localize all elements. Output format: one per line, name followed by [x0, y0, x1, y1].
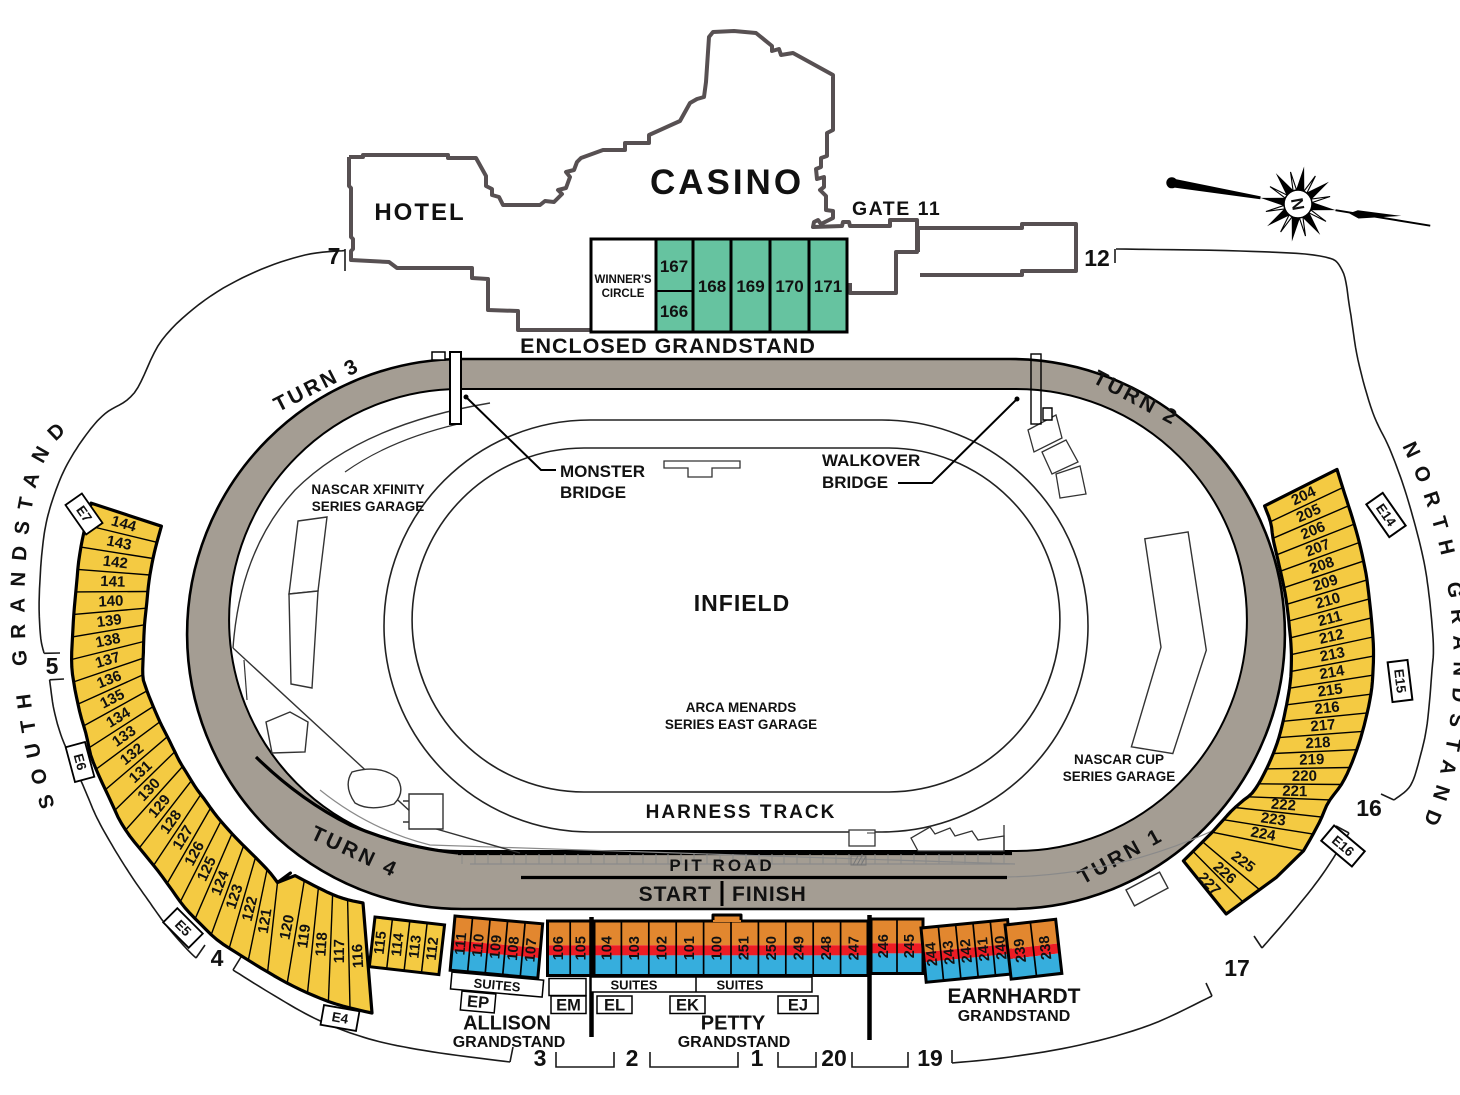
svg-text:216: 216: [1314, 698, 1341, 718]
svg-text:2: 2: [626, 1045, 639, 1071]
svg-text:MONSTER: MONSTER: [560, 462, 645, 481]
svg-text:140: 140: [98, 592, 124, 610]
svg-text:139: 139: [96, 611, 123, 631]
svg-text:246: 246: [876, 934, 892, 958]
svg-text:CIRCLE: CIRCLE: [602, 288, 645, 300]
svg-text:110: 110: [470, 933, 488, 958]
svg-text:PIT ROAD: PIT ROAD: [669, 856, 774, 875]
svg-text:HARNESS TRACK: HARNESS TRACK: [646, 802, 837, 823]
svg-text:SERIES GARAGE: SERIES GARAGE: [312, 499, 425, 514]
svg-text:BRIDGE: BRIDGE: [560, 483, 626, 502]
svg-text:GRANDSTAND: GRANDSTAND: [453, 1034, 566, 1051]
svg-text:119: 119: [294, 923, 314, 949]
svg-text:ARCA MENARDS: ARCA MENARDS: [686, 700, 797, 715]
svg-text:GRANDSTAND: GRANDSTAND: [678, 1034, 791, 1051]
svg-text:SERIES EAST GARAGE: SERIES EAST GARAGE: [665, 717, 817, 732]
svg-text:167: 167: [660, 257, 688, 276]
svg-text:17: 17: [1224, 955, 1250, 981]
svg-text:ENCLOSED GRANDSTAND: ENCLOSED GRANDSTAND: [520, 334, 816, 358]
svg-text:GATE 11: GATE 11: [852, 198, 941, 220]
svg-text:EM: EM: [556, 997, 581, 1015]
svg-text:249: 249: [792, 936, 808, 960]
svg-text:16: 16: [1356, 795, 1382, 821]
svg-text:117: 117: [331, 939, 348, 963]
svg-text:SERIES GARAGE: SERIES GARAGE: [1063, 769, 1176, 784]
svg-text:7: 7: [328, 243, 341, 269]
svg-text:241: 241: [975, 936, 993, 962]
svg-text:INFIELD: INFIELD: [694, 590, 790, 616]
svg-text:107: 107: [522, 937, 540, 963]
svg-text:109: 109: [487, 934, 505, 960]
svg-text:BRIDGE: BRIDGE: [822, 473, 888, 492]
svg-text:EP: EP: [466, 993, 490, 1013]
svg-text:E4: E4: [331, 1009, 350, 1027]
svg-text:EL: EL: [604, 997, 625, 1015]
svg-text:239: 239: [1011, 938, 1030, 964]
svg-text:141: 141: [100, 573, 126, 591]
svg-text:E15: E15: [1391, 668, 1409, 694]
svg-text:EJ: EJ: [788, 997, 808, 1015]
svg-text:12: 12: [1084, 245, 1110, 271]
svg-text:HOTEL: HOTEL: [374, 199, 465, 226]
svg-text:4: 4: [211, 945, 224, 971]
svg-text:104: 104: [600, 936, 616, 960]
svg-text:243: 243: [940, 940, 958, 966]
svg-text:108: 108: [505, 936, 523, 962]
svg-text:170: 170: [775, 277, 803, 296]
svg-text:WALKOVER: WALKOVER: [822, 451, 920, 470]
svg-text:251: 251: [737, 936, 753, 960]
svg-text:238: 238: [1037, 935, 1056, 961]
svg-text:242: 242: [958, 938, 976, 964]
svg-text:FINISH: FINISH: [732, 883, 807, 906]
svg-text:250: 250: [764, 936, 780, 960]
svg-text:218: 218: [1305, 734, 1331, 752]
svg-text:EARNHARDT: EARNHARDT: [948, 985, 1081, 1008]
svg-text:112: 112: [424, 936, 443, 961]
svg-text:100: 100: [709, 936, 725, 960]
svg-text:START: START: [639, 883, 712, 906]
svg-text:118: 118: [312, 932, 331, 957]
svg-text:244: 244: [923, 941, 941, 967]
svg-text:116: 116: [349, 943, 367, 968]
svg-text:NASCAR XFINITY: NASCAR XFINITY: [311, 482, 424, 497]
svg-text:245: 245: [902, 934, 918, 958]
svg-text:103: 103: [627, 936, 643, 960]
svg-text:101: 101: [682, 936, 698, 960]
svg-text:SUITES: SUITES: [717, 978, 764, 993]
svg-text:115: 115: [372, 930, 391, 955]
svg-text:247: 247: [846, 936, 862, 960]
svg-text:106: 106: [551, 936, 567, 960]
svg-text:111: 111: [452, 932, 470, 956]
svg-text:114: 114: [389, 932, 408, 957]
svg-text:142: 142: [102, 553, 129, 573]
svg-text:215: 215: [1317, 680, 1344, 700]
svg-text:SUITES: SUITES: [611, 978, 658, 993]
svg-text:105: 105: [574, 936, 590, 960]
svg-text:EK: EK: [676, 997, 699, 1015]
svg-text:PETTY: PETTY: [701, 1013, 766, 1035]
svg-text:CASINO: CASINO: [650, 163, 804, 202]
svg-text:219: 219: [1299, 751, 1325, 769]
svg-text:20: 20: [821, 1045, 847, 1071]
svg-text:168: 168: [698, 277, 726, 296]
svg-text:GRANDSTAND: GRANDSTAND: [958, 1008, 1071, 1025]
svg-text:5: 5: [46, 653, 59, 679]
svg-text:NASCAR CUP: NASCAR CUP: [1074, 752, 1164, 767]
svg-text:113: 113: [406, 934, 425, 959]
svg-text:171: 171: [814, 277, 842, 296]
svg-text:ALLISON: ALLISON: [463, 1013, 551, 1035]
svg-text:19: 19: [917, 1045, 943, 1071]
svg-text:166: 166: [660, 302, 688, 321]
svg-text:169: 169: [736, 277, 764, 296]
svg-text:217: 217: [1310, 716, 1336, 735]
svg-text:WINNER'S: WINNER'S: [594, 274, 651, 286]
svg-text:248: 248: [819, 936, 835, 960]
svg-text:102: 102: [655, 936, 671, 960]
